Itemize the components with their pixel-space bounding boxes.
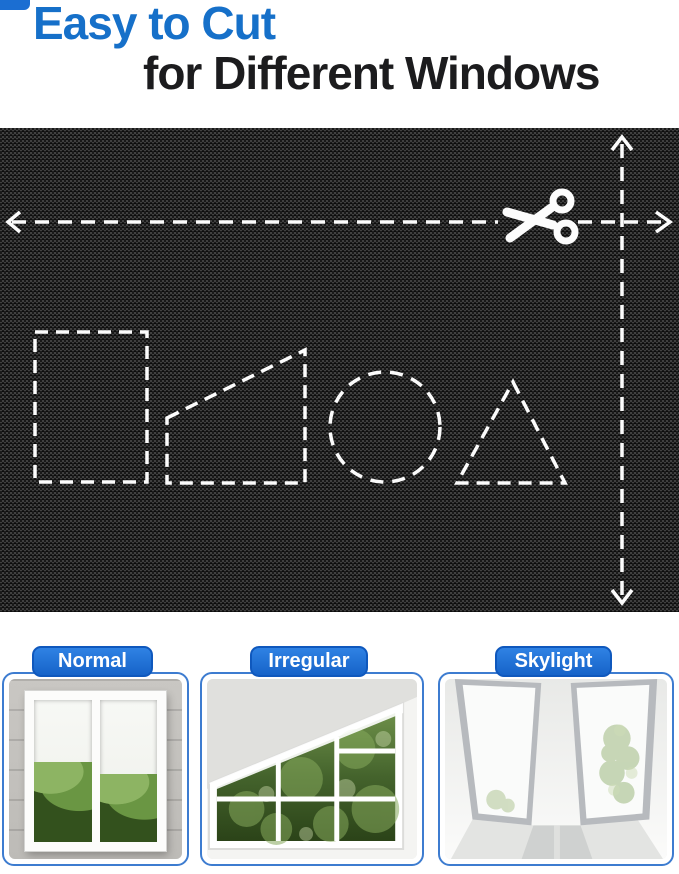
photo-normal-window <box>9 679 182 859</box>
card-irregular-window <box>200 672 424 866</box>
photo-irregular-window <box>207 679 417 859</box>
card-skylight-window <box>438 672 674 866</box>
label-skylight: Skylight <box>495 646 612 677</box>
label-normal: Normal <box>32 646 153 677</box>
headline-primary: Easy to Cut <box>33 0 275 48</box>
corner-accent-mark <box>0 0 30 10</box>
product-infographic: Easy to Cut for Different Windows <box>0 0 679 874</box>
scissors-icon <box>507 208 553 238</box>
label-irregular: Irregular <box>250 646 368 677</box>
cut-shape-triangle <box>457 382 565 483</box>
cut-shape-circle <box>330 372 440 482</box>
cut-shape-rectangle <box>35 332 147 482</box>
double-casement-window <box>25 691 166 851</box>
foliage <box>34 762 92 842</box>
cut-shape-trapezoid <box>167 350 305 483</box>
card-normal-window <box>2 672 189 866</box>
headline-secondary: for Different Windows <box>143 50 599 98</box>
cutting-guides <box>0 128 679 612</box>
photo-skylight-window <box>445 679 667 859</box>
blackout-fabric-panel <box>0 128 679 612</box>
foliage <box>100 774 158 842</box>
